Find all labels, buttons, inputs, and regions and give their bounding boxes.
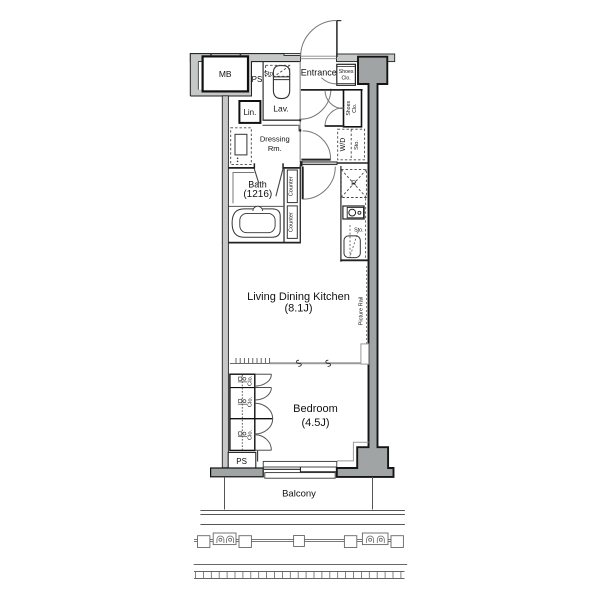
svg-text:Rm.: Rm.	[268, 144, 282, 153]
svg-text:Entrance: Entrance	[301, 68, 337, 78]
svg-text:Picture Rail: Picture Rail	[358, 297, 364, 326]
svg-text:Counter: Counter	[289, 176, 295, 196]
svg-text:Counter: Counter	[289, 212, 295, 232]
svg-text:Clo.: Clo.	[341, 75, 350, 81]
svg-text:Bath: Bath	[248, 180, 267, 190]
svg-text:Sto.: Sto.	[354, 227, 364, 233]
svg-text:Clo.: Clo.	[248, 429, 254, 440]
svg-text:Living Dining Kitchen: Living Dining Kitchen	[247, 291, 350, 303]
svg-text:Lin.: Lin.	[243, 108, 256, 117]
svg-text:W/D: W/D	[340, 138, 347, 152]
svg-text:(8.1J): (8.1J)	[284, 303, 312, 315]
svg-text:Clo.: Clo.	[248, 396, 254, 407]
svg-text:PS: PS	[252, 75, 263, 84]
svg-text:Clo.: Clo.	[248, 375, 254, 386]
svg-text:PS: PS	[236, 457, 247, 466]
svg-text:R: R	[351, 179, 357, 188]
svg-text:Balcony: Balcony	[282, 488, 316, 499]
svg-text:(4.5J): (4.5J)	[301, 417, 329, 429]
svg-text:(1216): (1216)	[243, 189, 272, 200]
svg-text:Sto.: Sto.	[354, 140, 360, 150]
svg-text:Sto.: Sto.	[264, 71, 275, 77]
svg-text:Shoes: Shoes	[339, 69, 354, 75]
svg-text:Dressing: Dressing	[260, 135, 290, 144]
svg-text:Lav.: Lav.	[273, 104, 288, 114]
svg-text:Bedroom: Bedroom	[293, 403, 338, 415]
svg-text:Clo.: Clo.	[352, 104, 358, 113]
svg-text:MB: MB	[219, 69, 232, 79]
